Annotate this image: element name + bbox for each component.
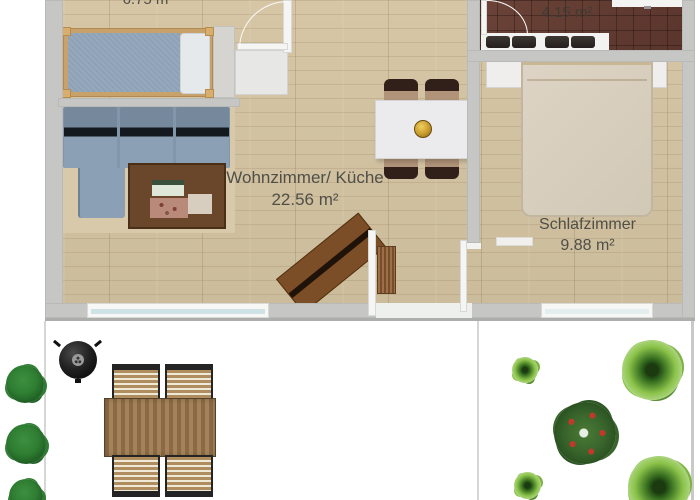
grill-lid-vent [72,354,84,366]
bed-post [63,28,70,35]
outer-wall-left [45,0,63,318]
kitchen-counter [235,50,288,95]
garden-chair [165,455,213,497]
wall-living-bedroom [467,0,480,243]
living-room-window [87,303,269,318]
building-shadow [45,318,695,321]
bedroom-name: Schlafzimmer [505,214,670,235]
bedroom-door-threshold [466,243,481,249]
window-glass [545,309,649,314]
vanity-sink [571,36,595,48]
bedroom-area: 9.88 m² [505,235,670,256]
bedroom-window [541,303,653,318]
bedroom-label: Schlafzimmer 9.88 m² [505,214,670,256]
tall-cabinet [213,26,235,98]
childroom-label: 6.75 m² [88,0,208,9]
hedge-bush [9,479,43,500]
hedge-bush [6,424,46,464]
sofa-cushion [120,107,173,168]
wall-bath-bedroom [467,50,695,62]
childroom-area: 6.75 m² [88,0,208,9]
magazine [152,180,184,196]
garden-bush [512,357,538,383]
garden-area [0,318,700,500]
single-bed-blanket [68,33,180,92]
bed-post [206,28,213,35]
vanity-sink [486,36,510,48]
apple-tree [554,402,616,464]
living-room-label: Wohnzimmer/ Küche 22.56 m² [200,167,410,211]
doormat [377,246,396,294]
decor-tray [150,198,188,218]
bed-post [206,90,213,97]
fruit-bowl [414,120,432,138]
bed-post [63,90,70,97]
garden-table [104,398,216,457]
entrance-opening [376,303,472,318]
grill-knob [75,379,81,383]
floorplan-screenshot: 6.75 m² Wohnzimmer/ Küche 22.56 m² Dusch… [0,0,700,500]
bedroom-door-leaf [460,240,467,312]
vanity-sink [512,36,536,48]
double-bed [521,55,653,217]
garden-divider [477,321,479,500]
outer-wall-right [682,0,695,318]
bathroom-label: Duschbad 4.15 m² [500,0,634,22]
grill-handle [94,340,102,347]
garden-chair [112,455,160,497]
garden-fence-left [44,321,46,500]
garden-fence-right [691,321,694,500]
living-room-name: Wohnzimmer/ Küche [200,167,410,189]
window-glass [91,309,265,314]
shower-screen-handle [644,6,651,9]
corner-sofa [63,107,230,168]
hedge-bush [6,365,44,403]
single-bed-pillow [180,33,210,94]
living-room-area: 22.56 m² [200,189,410,211]
bathroom-area: 4.15 m² [500,4,634,22]
entrance-door-leaf [368,230,376,316]
wall-childroom-bottom [58,98,240,107]
sofa-cushion [176,107,229,168]
sofa-cushion [64,107,117,168]
sofa-chaise [78,168,125,218]
garden-tree [622,340,682,400]
double-bed-fold [527,79,647,81]
garden-bush [514,472,541,499]
vanity-sink [545,36,569,48]
grill-handle [53,340,61,347]
apartment-plan: 6.75 m² Wohnzimmer/ Küche 22.56 m² Dusch… [0,0,700,318]
garden-tree [628,456,690,500]
